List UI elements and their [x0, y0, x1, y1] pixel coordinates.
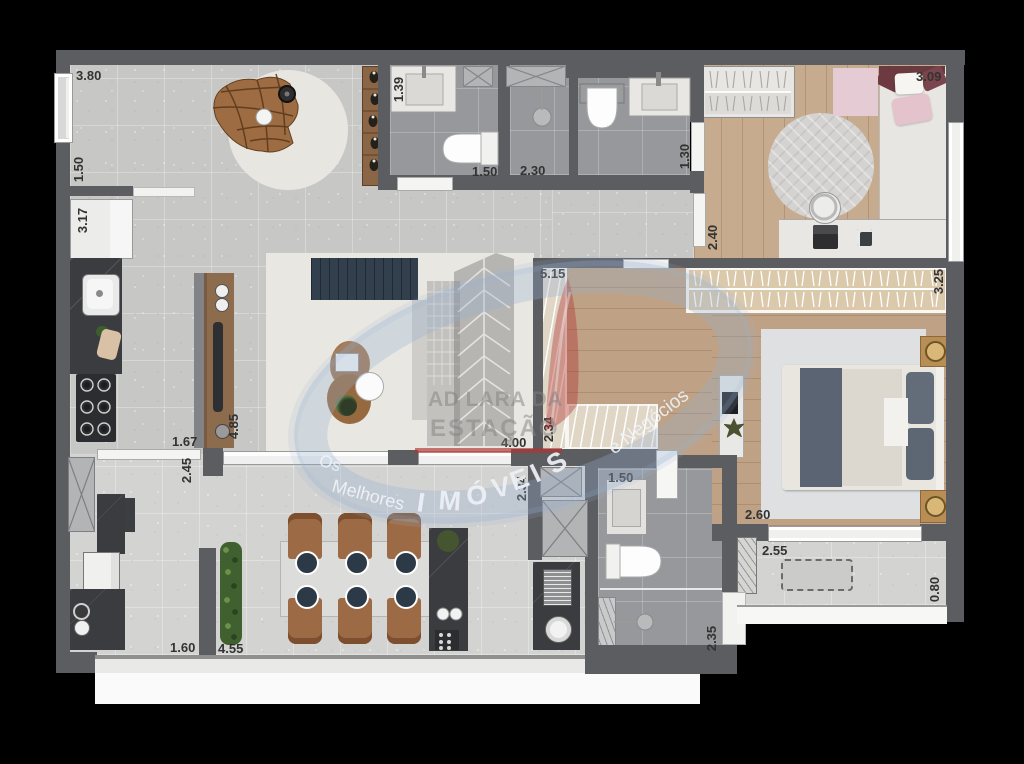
svg-text:M: M	[438, 485, 463, 516]
svg-text:ESTAÇÃO: ESTAÇÃO	[430, 414, 560, 442]
svg-text:Ó: Ó	[465, 479, 488, 511]
svg-text:AD LARA DA: AD LARA DA	[428, 388, 563, 411]
